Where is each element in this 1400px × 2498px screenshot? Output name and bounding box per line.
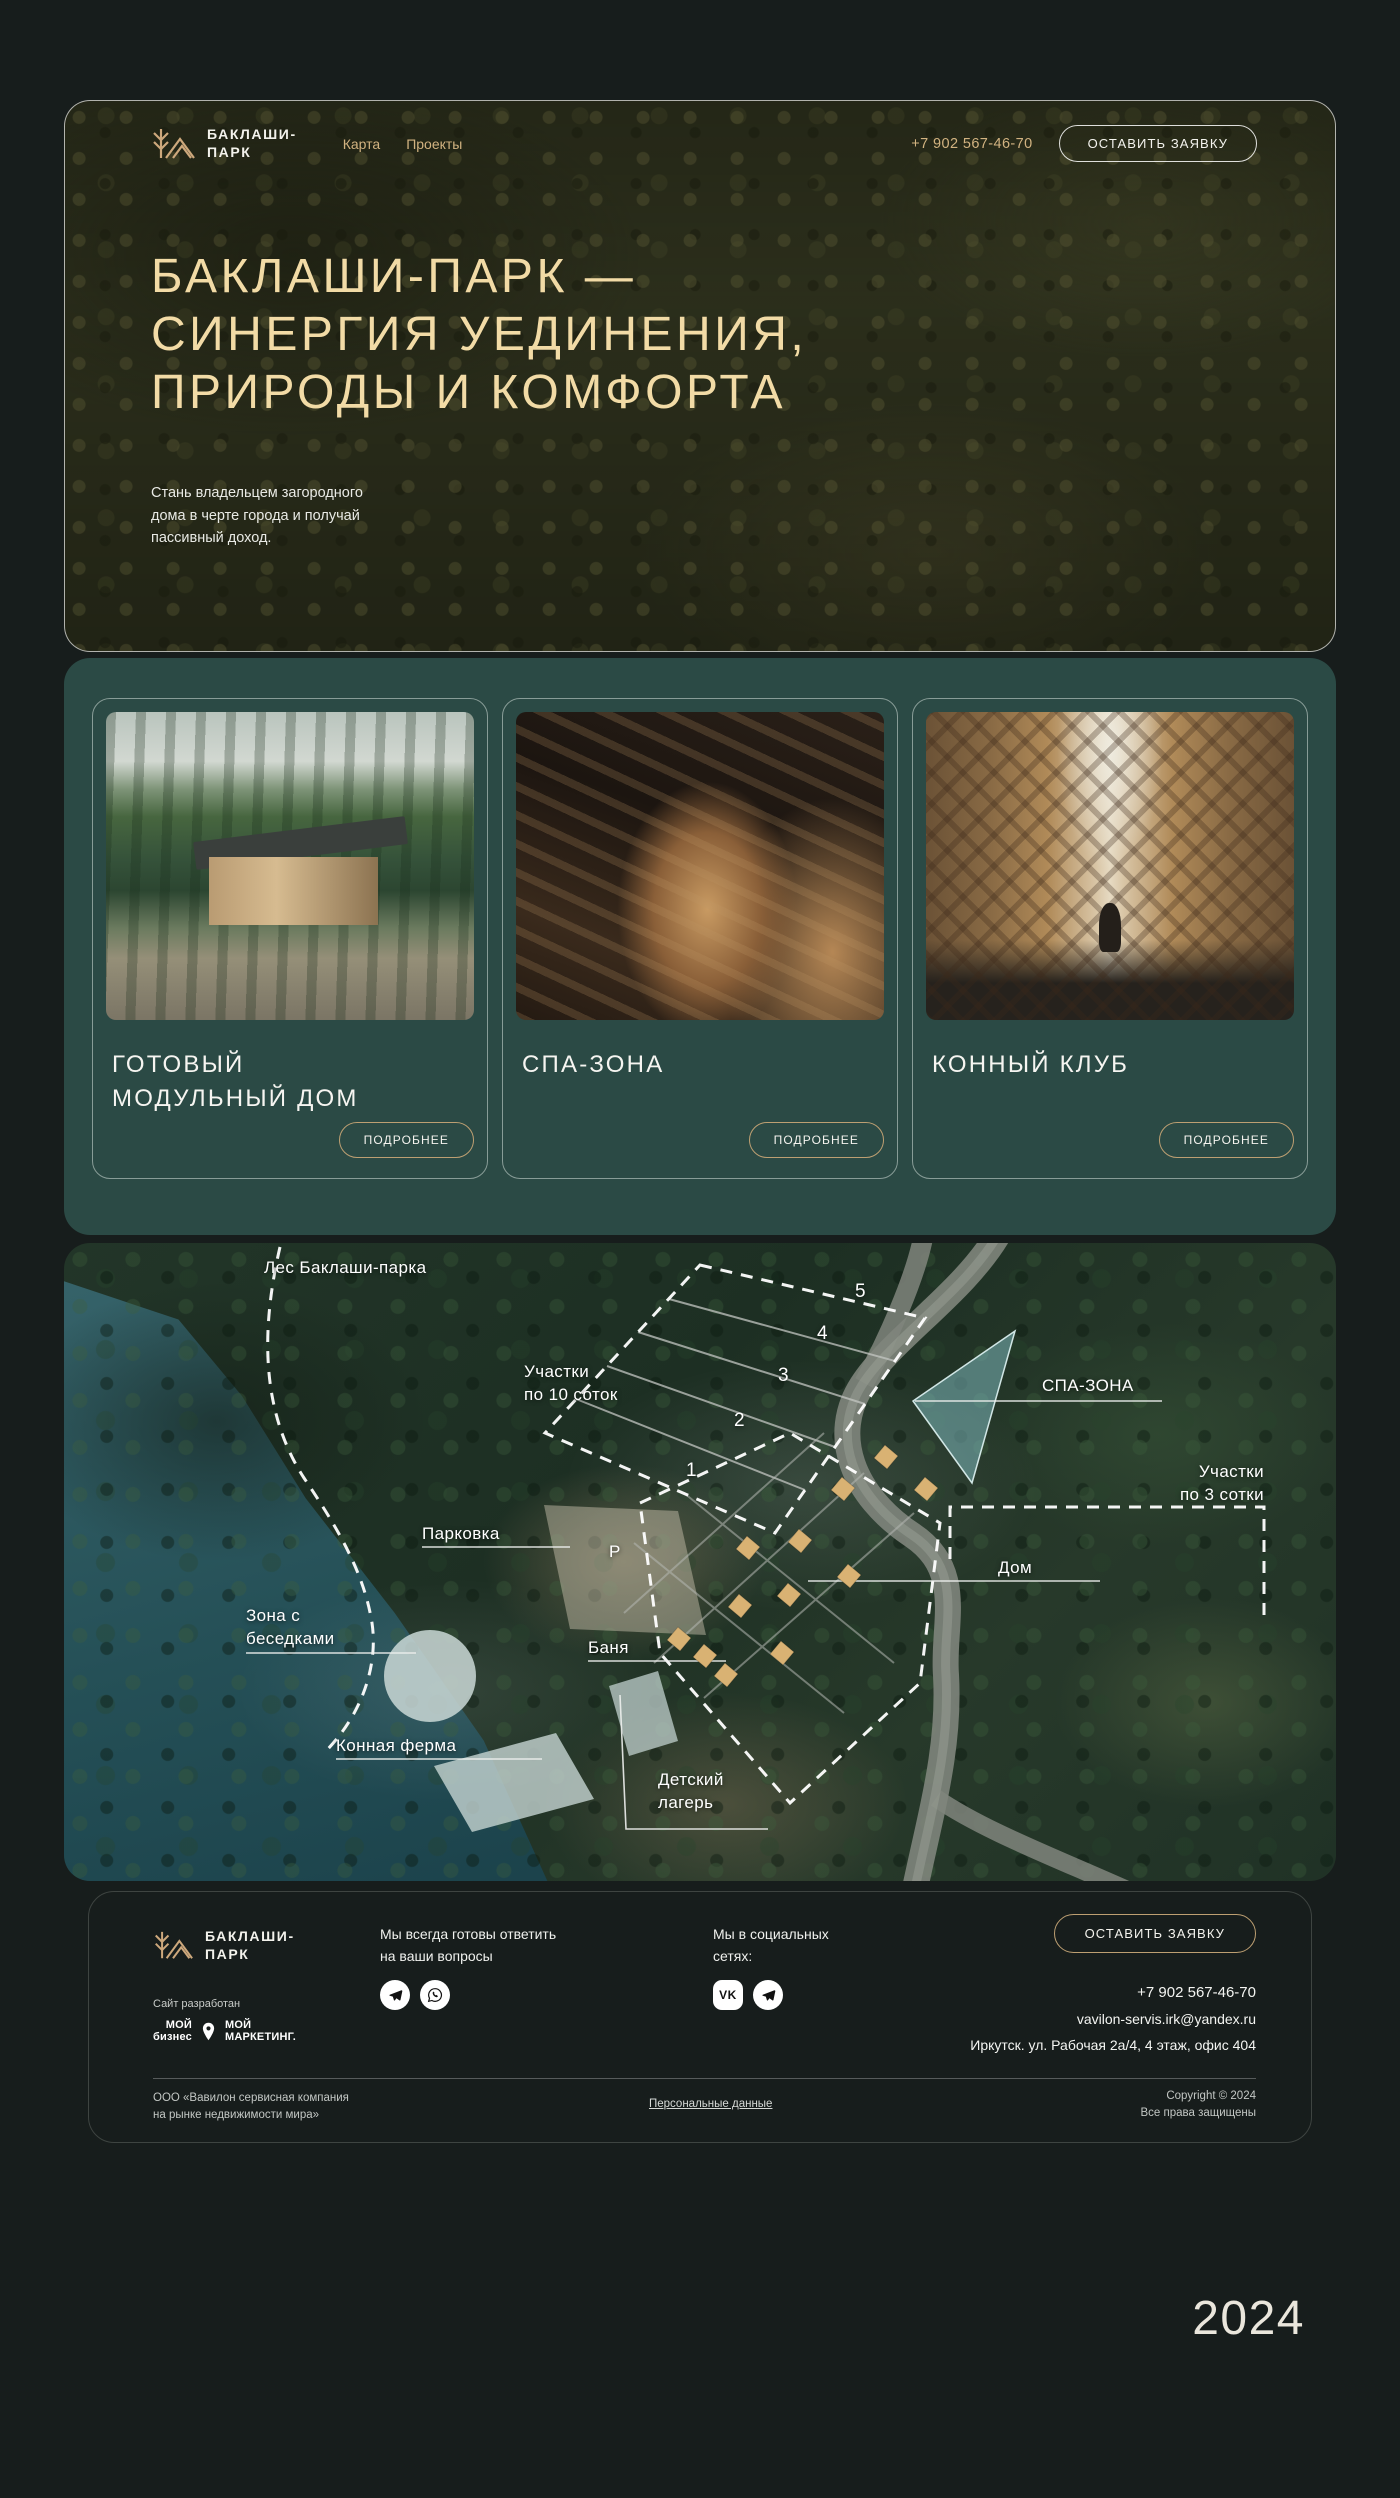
landing-page: БАКЛАШИ- ПАРК Карта Проекты +7 902 567-4… (0, 0, 1400, 2498)
map-pin-icon (201, 2022, 216, 2041)
footer-questions-text: Мы всегда готовы ответить на ваши вопрос… (380, 1924, 556, 1967)
nav-link-map[interactable]: Карта (343, 136, 380, 152)
map-label-plots-3: Участки по 3 сотки (1114, 1461, 1264, 1507)
card-modular-house[interactable]: ГОТОВЫЙ МОДУЛЬНЫЙ ДОМ ПОДРОБНЕЕ (92, 698, 488, 1179)
footer-cta-button[interactable]: ОСТАВИТЬ ЗАЯВКУ (1054, 1914, 1256, 1953)
footer-social-icons: VK (713, 1980, 783, 2010)
footer-copyright: Copyright © 2024 Все права защищены (1141, 2088, 1257, 2123)
header: БАКЛАШИ- ПАРК Карта Проекты +7 902 567-4… (65, 101, 1335, 162)
developed-by-caption: Сайт разработан (153, 1998, 296, 2010)
house-body-shape (209, 857, 378, 925)
card-spa-zone[interactable]: СПА-ЗОНА ПОДРОБНЕЕ (502, 698, 898, 1179)
card-horse-club[interactable]: КОННЫЙ КЛУБ ПОДРОБНЕЕ (912, 698, 1308, 1179)
card-details-button[interactable]: ПОДРОБНЕЕ (749, 1122, 884, 1158)
map-label-gazebo-zone: Зона с беседками (246, 1605, 335, 1651)
map-label-plots-10: Участки по 10 соток (524, 1361, 618, 1407)
footer-contact-icons (380, 1980, 450, 2010)
brand-name-line1: БАКЛАШИ- (207, 126, 297, 144)
card-details-button[interactable]: ПОДРОБНЕЕ (1159, 1122, 1294, 1158)
spa-sauna-image (516, 712, 884, 1020)
hero-subtitle: Стань владельцем загородного дома в черт… (151, 482, 419, 549)
telegram-icon[interactable] (380, 1980, 410, 2010)
map-label-spa: СПА-ЗОНА (1042, 1375, 1134, 1398)
moy-biznes-logo: МОЙ бизнес (153, 2019, 192, 2043)
brand-logo-icon (151, 126, 195, 162)
footer-brand-logo-icon (153, 1929, 193, 1962)
footer: БАКЛАШИ- ПАРК Мы всегда готовы ответить … (88, 1891, 1312, 2143)
map-label-parking: Парковка (422, 1523, 500, 1546)
modular-house-image (106, 712, 474, 1020)
year-badge: 2024 (0, 2295, 1305, 2343)
whatsapp-icon[interactable] (420, 1980, 450, 2010)
map-parking-letter: Р (609, 1541, 621, 1564)
card-title: ГОТОВЫЙ МОДУЛЬНЫЙ ДОМ (112, 1048, 468, 1116)
plot-number-3: 3 (778, 1365, 789, 1387)
footer-divider (153, 2078, 1256, 2079)
features-section: ГОТОВЫЙ МОДУЛЬНЫЙ ДОМ ПОДРОБНЕЕ СПА-ЗОНА… (64, 658, 1336, 1235)
footer-address: Иркутск. ул. Рабочая 2а/4, 4 этаж, офис … (970, 2037, 1256, 2053)
hero-title-line2: СИНЕРГИЯ УЕДИНЕНИЯ, (151, 306, 1335, 364)
footer-social-text: Мы в социальных сетях: (713, 1924, 829, 1967)
telegram-icon[interactable] (753, 1980, 783, 2010)
hero-title: БАКЛАШИ-ПАРК — СИНЕРГИЯ УЕДИНЕНИЯ, ПРИРО… (151, 248, 1335, 422)
master-plan-map: Лес Баклаши-парка Участки по 10 соток 5 … (64, 1243, 1336, 1881)
header-phone-link[interactable]: +7 902 567-46-70 (911, 136, 1032, 152)
card-title: СПА-ЗОНА (522, 1048, 878, 1082)
footer-brand-line2: ПАРК (205, 1946, 295, 1964)
main-nav: Карта Проекты (343, 136, 463, 152)
footer-email-link[interactable]: vavilon-servis.irk@yandex.ru (1077, 2011, 1256, 2027)
moy-marketing-logo: МОЙ МАРКЕТИНГ. (225, 2019, 296, 2043)
brand-name-line2: ПАРК (207, 144, 297, 162)
personal-data-link[interactable]: Персональные данные (649, 2098, 772, 2110)
footer-company-name: ООО «Вавилон сервисная компания на рынке… (153, 2090, 349, 2125)
horse-stable-image (926, 712, 1294, 1020)
plot-number-1: 1 (686, 1460, 697, 1482)
map-label-kids-camp: Детский лагерь (658, 1769, 724, 1815)
card-details-button[interactable]: ПОДРОБНЕЕ (339, 1122, 474, 1158)
vk-glyph: VK (719, 1988, 737, 2002)
hero-title-line1: БАКЛАШИ-ПАРК — (151, 248, 1335, 306)
vk-icon[interactable]: VK (713, 1980, 743, 2010)
footer-brand-logo[interactable]: БАКЛАШИ- ПАРК (153, 1928, 295, 1963)
card-title: КОННЫЙ КЛУБ (932, 1048, 1288, 1082)
telegram-plane-glyph (761, 1988, 776, 2003)
whatsapp-glyph (427, 1987, 443, 2003)
map-label-forest: Лес Баклаши-парка (264, 1257, 426, 1280)
brand-logo[interactable]: БАКЛАШИ- ПАРК (151, 126, 297, 162)
map-label-horse-farm: Конная ферма (336, 1735, 456, 1758)
hero-section: БАКЛАШИ- ПАРК Карта Проекты +7 902 567-4… (64, 100, 1336, 652)
horse-silhouette (1099, 903, 1121, 952)
plot-number-4: 4 (817, 1323, 828, 1345)
plot-number-2: 2 (734, 1410, 745, 1432)
footer-developer-block: Сайт разработан МОЙ бизнес МОЙ МАРКЕТИНГ… (153, 1998, 296, 2043)
telegram-plane-glyph (388, 1988, 403, 2003)
map-label-house: Дом (998, 1557, 1032, 1580)
hero-title-line3: ПРИРОДЫ И КОМФОРТА (151, 364, 1335, 422)
map-label-banya: Баня (588, 1637, 629, 1660)
plot-number-5: 5 (855, 1281, 866, 1303)
footer-phone-link[interactable]: +7 902 567-46-70 (1137, 1984, 1256, 2001)
header-cta-button[interactable]: ОСТАВИТЬ ЗАЯВКУ (1059, 125, 1257, 162)
footer-brand-line1: БАКЛАШИ- (205, 1928, 295, 1946)
nav-link-projects[interactable]: Проекты (406, 136, 462, 152)
